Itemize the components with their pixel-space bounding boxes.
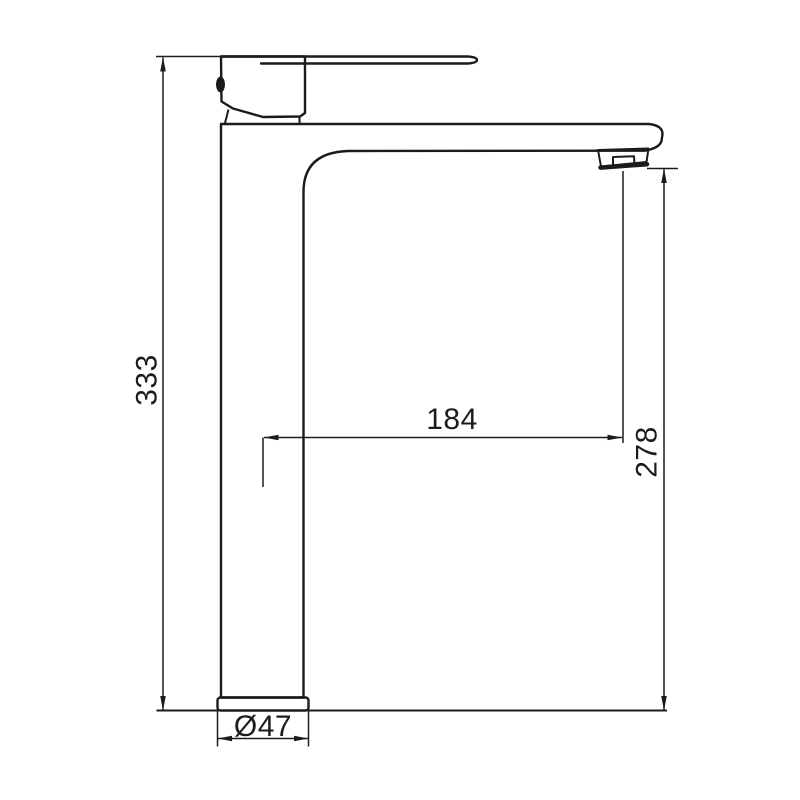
base-flange [218, 698, 309, 711]
dimension-group: 333 184 278 Ø47 [131, 57, 679, 747]
dim-label-outlet-height: 278 [631, 426, 664, 478]
arrow-outlet-height-top [661, 169, 667, 184]
faucet-technical-drawing: 333 184 278 Ø47 [0, 0, 800, 800]
arrow-spout-reach-right [608, 435, 623, 441]
arrow-spout-reach-left [264, 435, 279, 441]
handle-indicator-dot [216, 77, 225, 93]
arrow-base-diameter-right [294, 736, 309, 742]
arrow-overall-height-top [160, 57, 166, 72]
dim-label-overall-height: 333 [131, 354, 164, 406]
handle-tip-line [225, 110, 229, 126]
dim-label-spout-reach: 184 [426, 403, 478, 436]
aerator-face [601, 164, 648, 167]
dim-label-base-diameter: Ø47 [234, 710, 292, 743]
arrow-base-diameter-left [218, 736, 233, 742]
technical-drawing-page: 333 184 278 Ø47 [0, 0, 800, 800]
arrow-overall-height-bottom [160, 696, 166, 711]
arrow-outlet-height-bottom [661, 696, 667, 711]
faucet-outline-group [216, 57, 663, 711]
handle-housing [221, 57, 305, 118]
